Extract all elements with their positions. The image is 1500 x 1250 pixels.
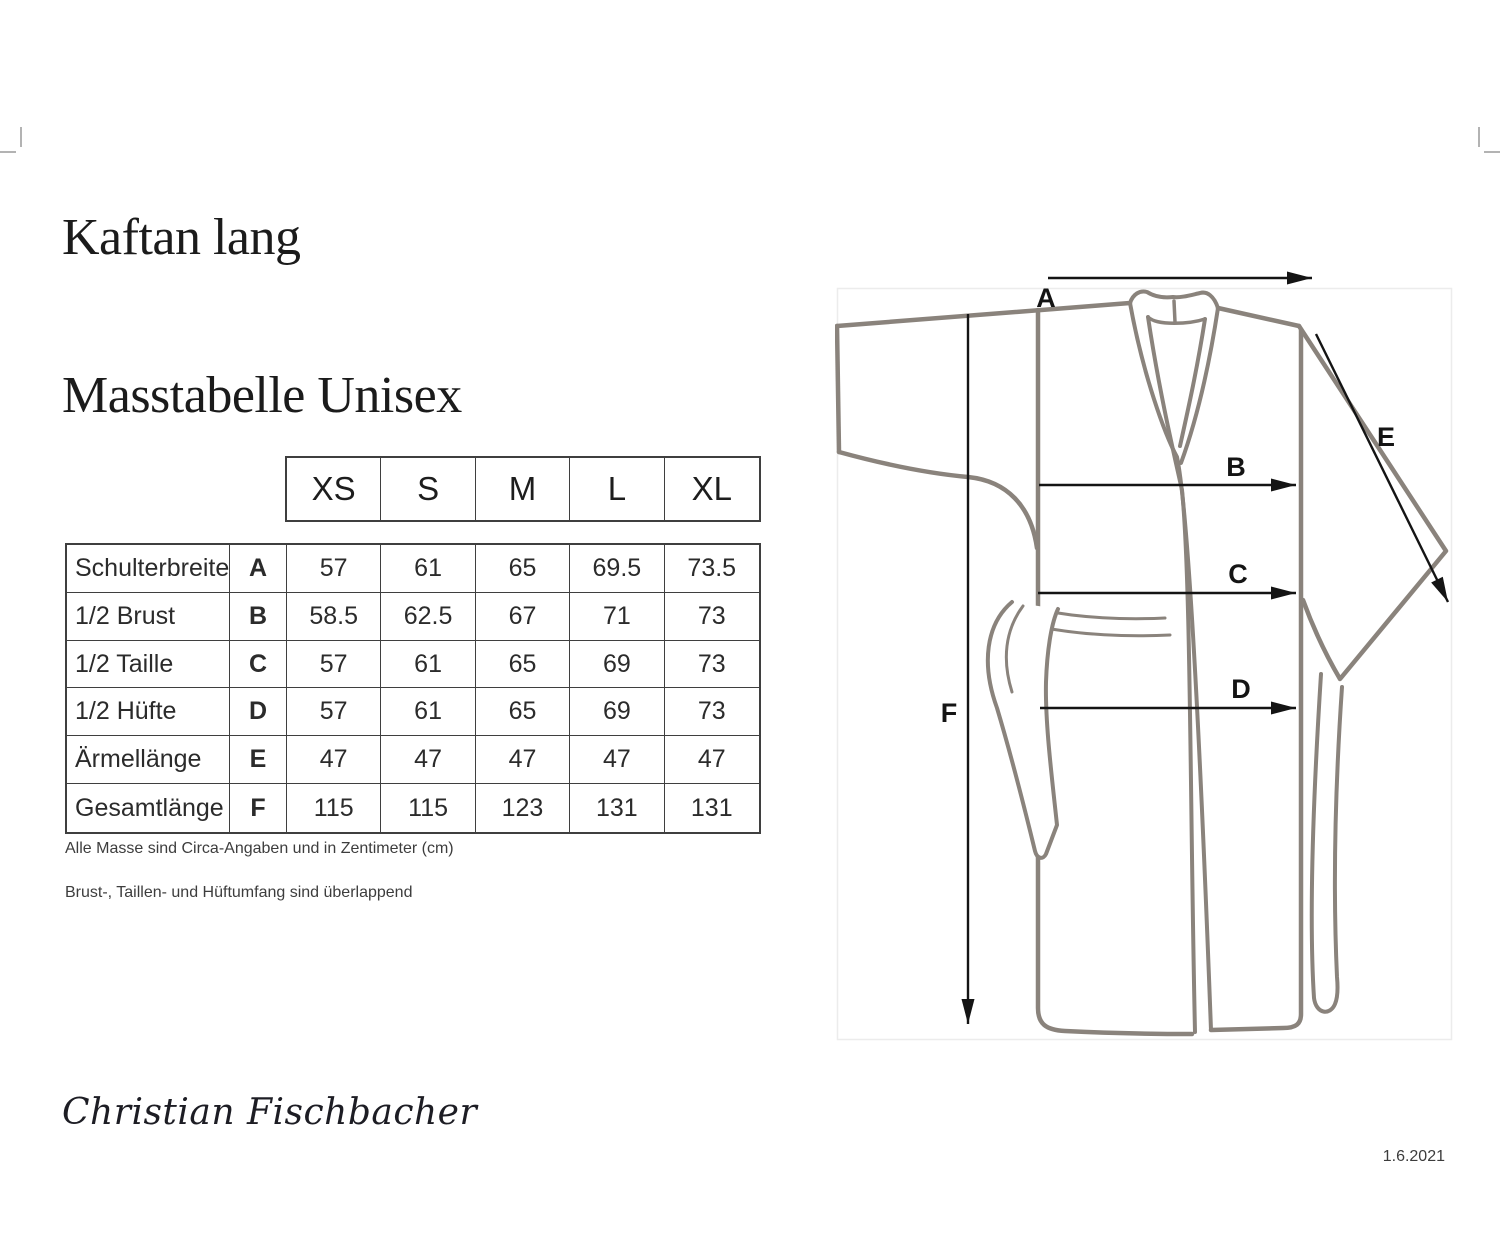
row-label: 1/2 Brust xyxy=(67,593,230,641)
label-f: F xyxy=(941,698,958,728)
cell-value: 69 xyxy=(570,688,664,736)
row-label: 1/2 Taille xyxy=(67,641,230,689)
cell-value: 67 xyxy=(476,593,570,641)
table-footnote: Alle Masse sind Circa-Angaben und in Zen… xyxy=(65,838,454,904)
page-title-line2: Masstabelle Unisex xyxy=(62,367,462,424)
row-code: D xyxy=(230,688,287,736)
label-b: B xyxy=(1226,452,1246,482)
kaftan-measurement-diagram: A B C D E F xyxy=(835,250,1455,1050)
cell-value: 65 xyxy=(476,545,570,593)
row-code: A xyxy=(230,545,287,593)
cell-value: 73 xyxy=(665,593,759,641)
cell-value: 58.5 xyxy=(287,593,381,641)
footnote-line2: Brust-, Taillen- und Hüftumfang sind übe… xyxy=(65,884,412,901)
cell-value: 131 xyxy=(570,784,664,832)
row-label: Gesamtlänge xyxy=(67,784,230,832)
row-label: Schulterbreite xyxy=(67,545,230,593)
cell-value: 47 xyxy=(476,736,570,784)
label-c: C xyxy=(1228,559,1248,589)
size-header-l: L xyxy=(570,458,664,520)
cell-value: 123 xyxy=(476,784,570,832)
cell-value: 65 xyxy=(476,688,570,736)
row-label: Ärmellänge xyxy=(67,736,230,784)
crop-mark-right-horizontal xyxy=(1484,151,1500,153)
crop-mark-left-horizontal xyxy=(0,151,16,153)
crop-mark-right-vertical xyxy=(1478,127,1480,147)
page-title: Kaftan lang Masstabelle Unisex xyxy=(62,198,462,435)
diagram-frame xyxy=(838,289,1452,1040)
cell-value: 47 xyxy=(381,736,475,784)
cell-value: 61 xyxy=(381,641,475,689)
cell-value: 57 xyxy=(287,641,381,689)
size-header-xl: XL xyxy=(665,458,759,520)
cell-value: 69 xyxy=(570,641,664,689)
cell-value: 61 xyxy=(381,688,475,736)
row-code: F xyxy=(230,784,287,832)
cell-value: 69.5 xyxy=(570,545,664,593)
cell-value: 47 xyxy=(570,736,664,784)
cell-value: 131 xyxy=(665,784,759,832)
row-code: E xyxy=(230,736,287,784)
row-code: C xyxy=(230,641,287,689)
cell-value: 73 xyxy=(665,688,759,736)
cell-value: 73 xyxy=(665,641,759,689)
document-date: 1.6.2021 xyxy=(1350,1148,1445,1166)
cell-value: 115 xyxy=(287,784,381,832)
size-header-s: S xyxy=(381,458,475,520)
size-header-m: M xyxy=(476,458,570,520)
label-a: A xyxy=(1036,283,1056,313)
cell-value: 47 xyxy=(665,736,759,784)
cell-value: 73.5 xyxy=(665,545,759,593)
cell-value: 65 xyxy=(476,641,570,689)
cell-value: 62.5 xyxy=(381,593,475,641)
row-label: 1/2 Hüfte xyxy=(67,688,230,736)
label-d: D xyxy=(1231,674,1251,704)
cell-value: 71 xyxy=(570,593,664,641)
label-e: E xyxy=(1377,422,1395,452)
cell-value: 57 xyxy=(287,688,381,736)
footnote-line1: Alle Masse sind Circa-Angaben und in Zen… xyxy=(65,840,454,857)
size-header-xs: XS xyxy=(287,458,381,520)
brand-logo: Christian Fischbacher xyxy=(62,1092,477,1133)
crop-mark-left-vertical xyxy=(20,127,22,147)
measurement-table: Schulterbreite A 57 61 65 69.5 73.5 1/2 … xyxy=(65,543,761,834)
page-title-line1: Kaftan lang xyxy=(62,209,301,266)
size-header-table: XS S M L XL xyxy=(285,456,761,522)
cell-value: 61 xyxy=(381,545,475,593)
row-code: B xyxy=(230,593,287,641)
cell-value: 47 xyxy=(287,736,381,784)
cell-value: 57 xyxy=(287,545,381,593)
cell-value: 115 xyxy=(381,784,475,832)
